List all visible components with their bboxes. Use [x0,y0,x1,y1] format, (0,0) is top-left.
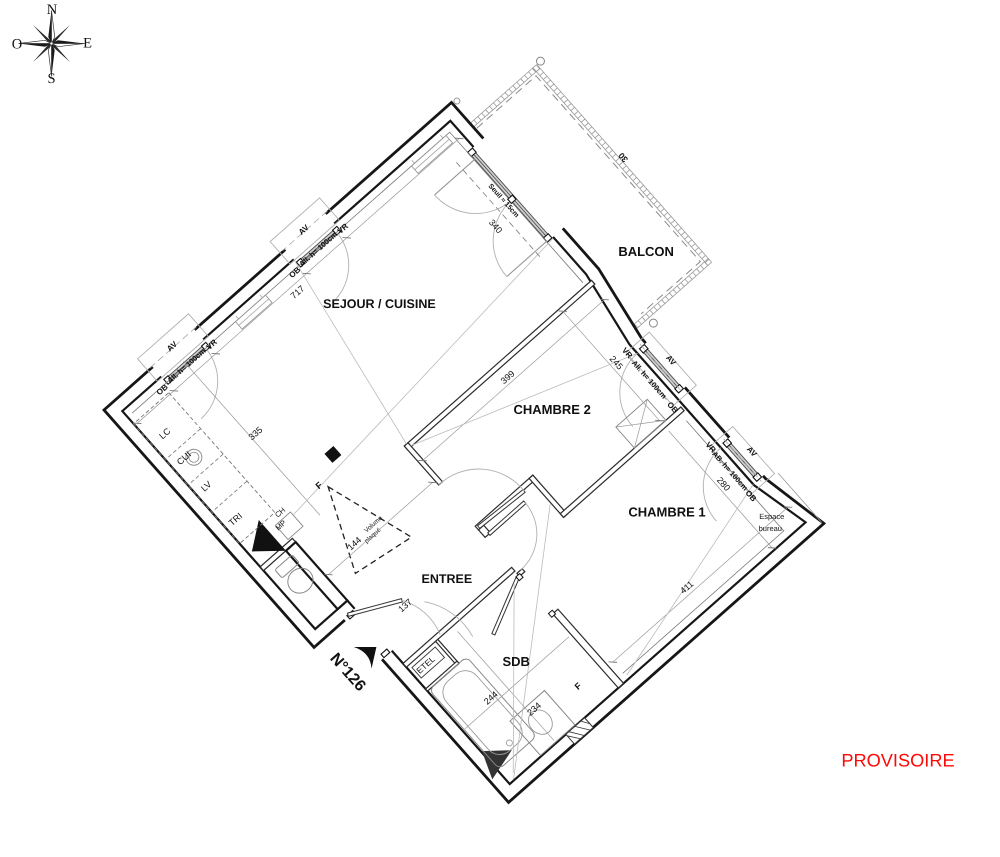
svg-text:S: S [47,71,55,87]
svg-text:bureau: bureau [759,524,782,533]
svg-text:E: E [83,36,92,52]
svg-text:Espace: Espace [759,512,784,521]
svg-text:BALCON: BALCON [618,244,674,259]
svg-text:O: O [12,37,22,53]
svg-text:PROVISOIRE: PROVISOIRE [841,751,954,771]
svg-text:CHAMBRE 2: CHAMBRE 2 [514,402,591,417]
svg-text:CHAMBRE 1: CHAMBRE 1 [628,505,705,520]
svg-text:SDB: SDB [502,654,529,669]
svg-text:SEJOUR / CUISINE: SEJOUR / CUISINE [323,297,436,311]
svg-text:ENTREE: ENTREE [422,572,473,586]
svg-text:N: N [47,2,58,18]
